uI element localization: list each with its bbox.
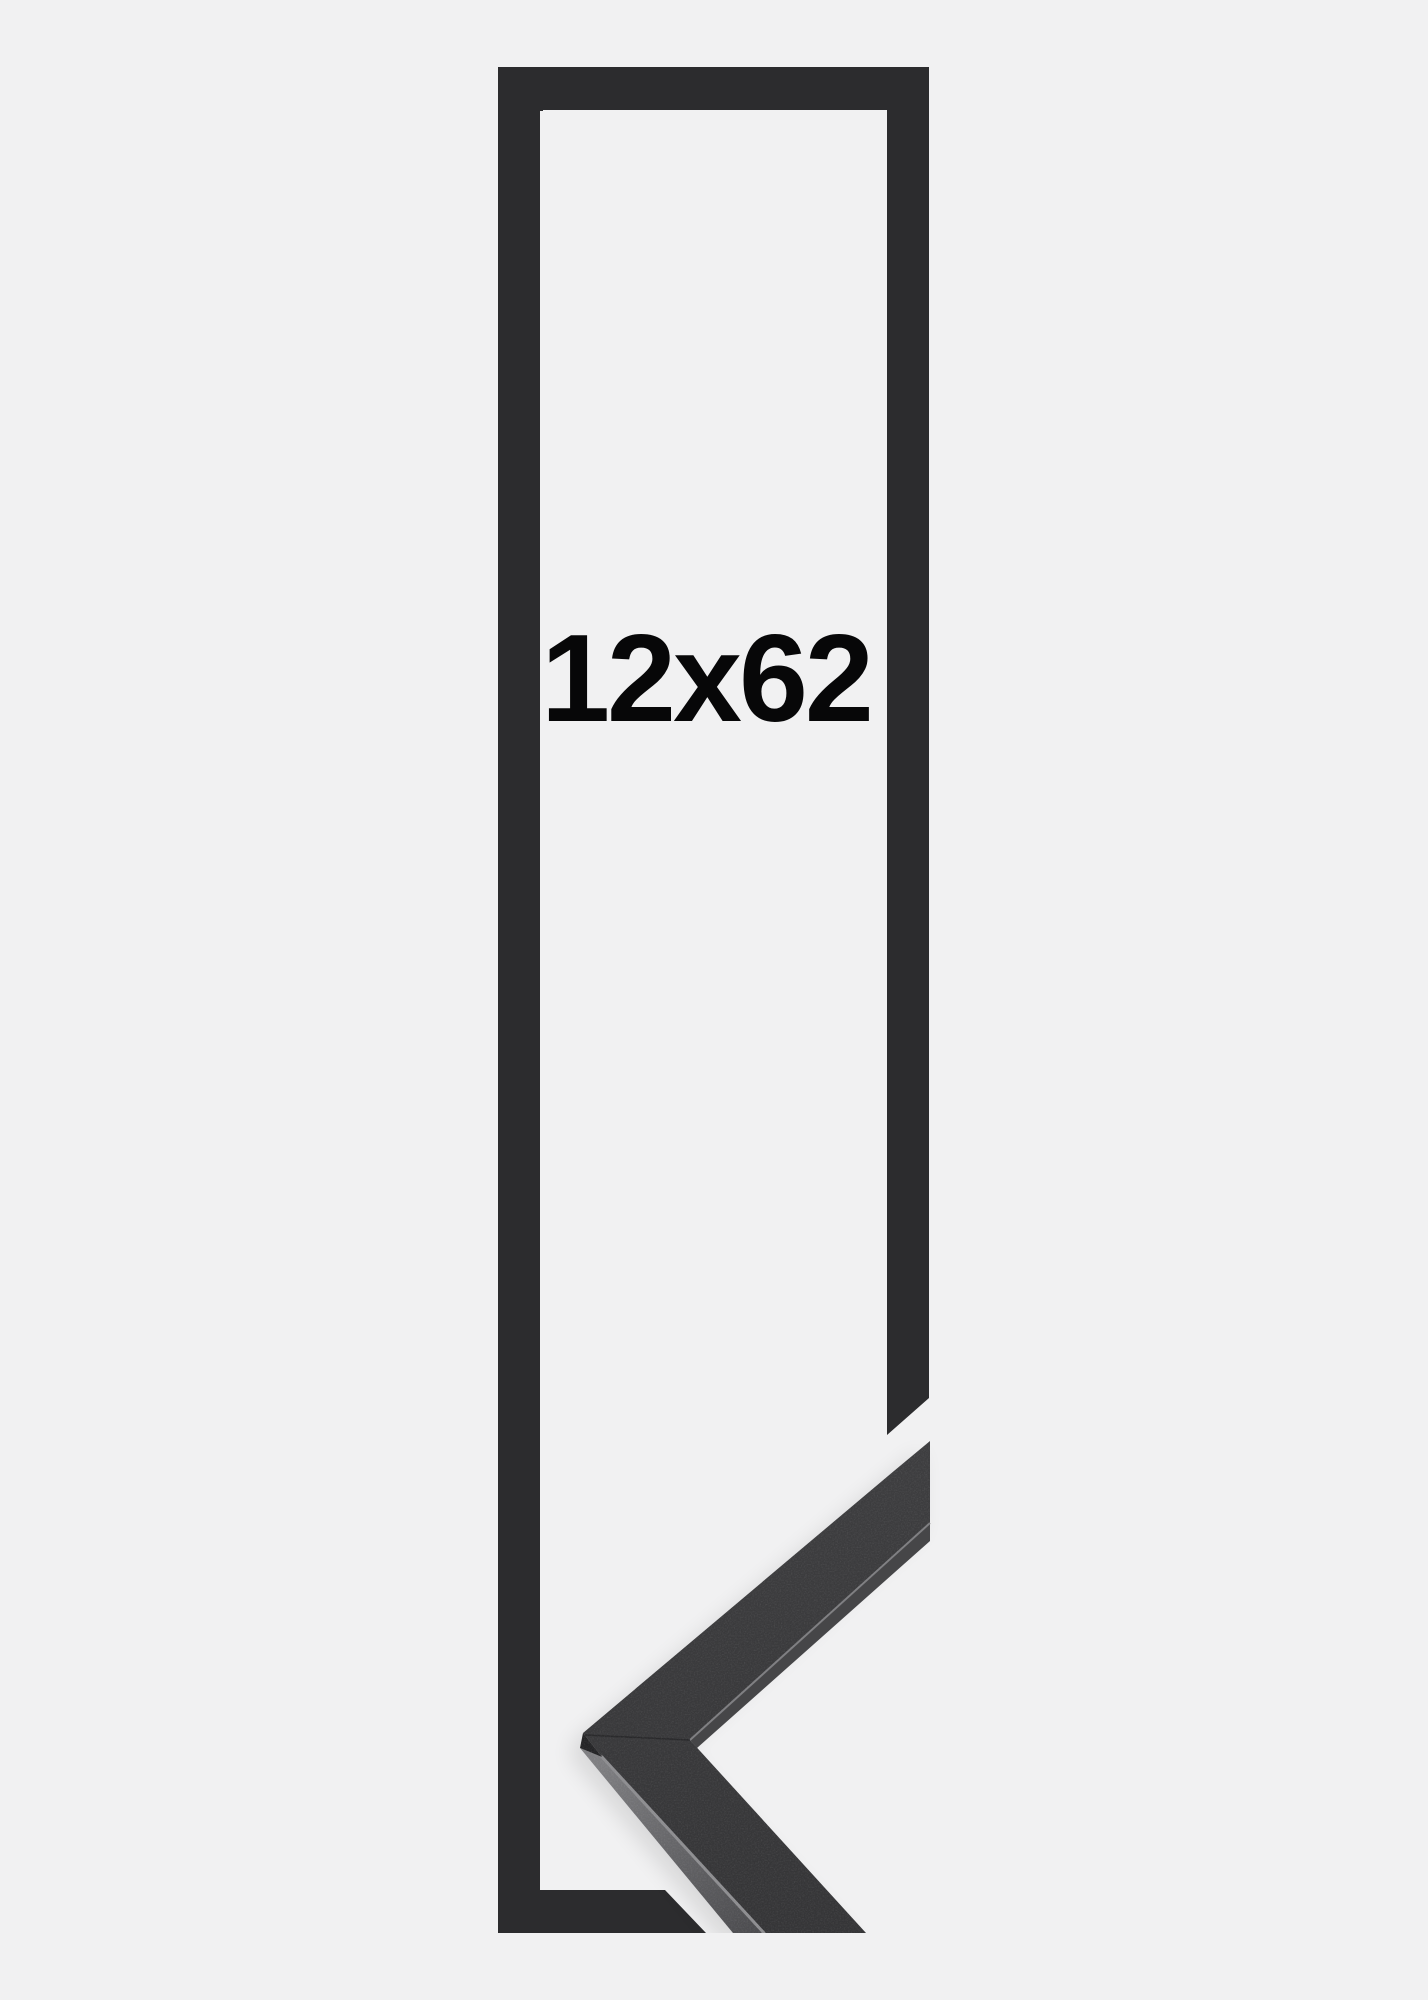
miter-notch-top-left (535, 103, 543, 111)
frame-product-image: 12x62 (0, 0, 1428, 2000)
miter-notch-top-right (879, 102, 887, 110)
size-label: 12x62 (541, 610, 871, 748)
